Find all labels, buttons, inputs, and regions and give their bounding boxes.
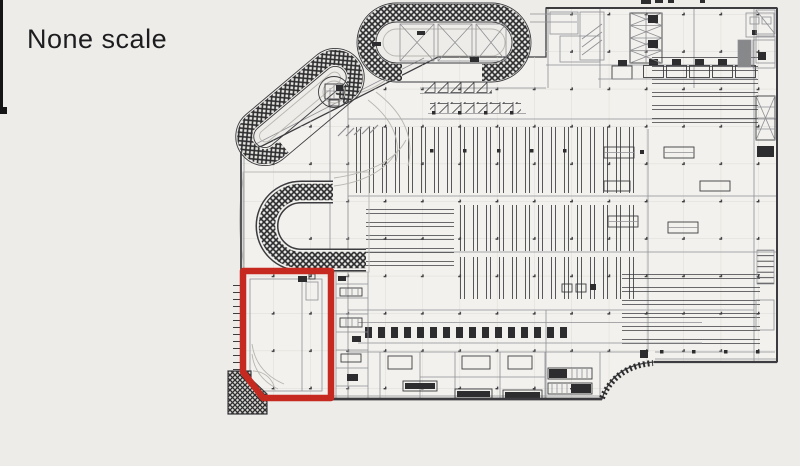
scanned-floor-plan-page: None scale [0, 0, 800, 466]
photo-edge-artifact [0, 0, 7, 114]
photo-top-marks [641, 0, 705, 4]
spiral-hub [319, 77, 350, 108]
shaft-gray-fill [738, 40, 751, 67]
page-title: None scale [27, 24, 167, 54]
floor-plan-drawing: None scale [0, 0, 800, 466]
